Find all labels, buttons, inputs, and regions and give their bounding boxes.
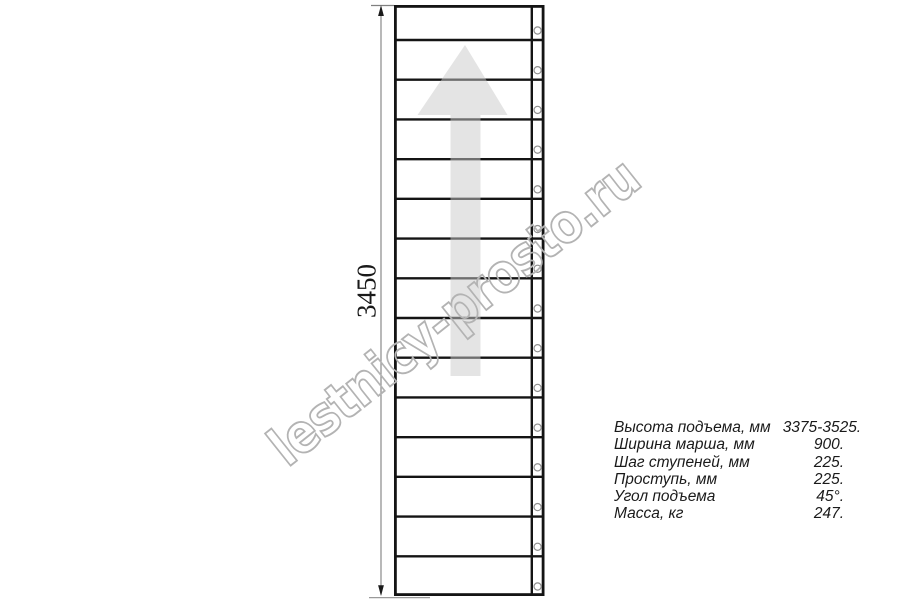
- mount-hole: [534, 424, 541, 431]
- spec-row: Угол подъема 45°.: [614, 488, 844, 505]
- page: 3450 lestnicy-prosto.ru Высота подъема, …: [0, 0, 900, 600]
- spec-label: Ширина марша, мм: [614, 436, 755, 453]
- mount-hole: [534, 503, 541, 510]
- spec-label: Высота подъема, мм: [614, 419, 771, 436]
- spec-value: 900.: [802, 436, 844, 453]
- mount-hole: [534, 345, 541, 352]
- spec-label: Угол подъема: [614, 488, 715, 505]
- spec-label: Масса, кг: [614, 505, 683, 522]
- spec-value: 3375-3525.: [771, 419, 861, 436]
- spec-row: Шаг ступеней, мм 225.: [614, 454, 844, 471]
- dimension-arrowhead-top-icon: [378, 5, 384, 16]
- stringer-holes: [534, 27, 541, 590]
- mount-hole: [534, 186, 541, 193]
- spec-value: 225.: [802, 471, 844, 488]
- mount-hole: [534, 67, 541, 74]
- mount-hole: [534, 27, 541, 34]
- mount-hole: [534, 543, 541, 550]
- mount-hole: [534, 384, 541, 391]
- mount-hole: [534, 464, 541, 471]
- dimension-value: 3450: [352, 264, 382, 318]
- spec-value: 45°.: [804, 488, 844, 505]
- mount-hole: [534, 583, 541, 590]
- spec-value: 247.: [802, 505, 844, 522]
- mount-hole: [534, 106, 541, 113]
- spec-value: 225.: [802, 454, 844, 471]
- spec-table: Высота подъема, мм 3375-3525. Ширина мар…: [614, 419, 844, 523]
- spec-row: Ширина марша, мм 900.: [614, 436, 844, 453]
- spec-row: Высота подъема, мм 3375-3525.: [614, 419, 844, 436]
- dimension-arrowhead-bottom-icon: [378, 585, 384, 596]
- spec-row: Проступь, мм 225.: [614, 471, 844, 488]
- mount-hole: [534, 305, 541, 312]
- spec-label: Проступь, мм: [614, 471, 717, 488]
- spec-label: Шаг ступеней, мм: [614, 454, 750, 471]
- spec-row: Масса, кг 247.: [614, 505, 844, 522]
- mount-hole: [534, 146, 541, 153]
